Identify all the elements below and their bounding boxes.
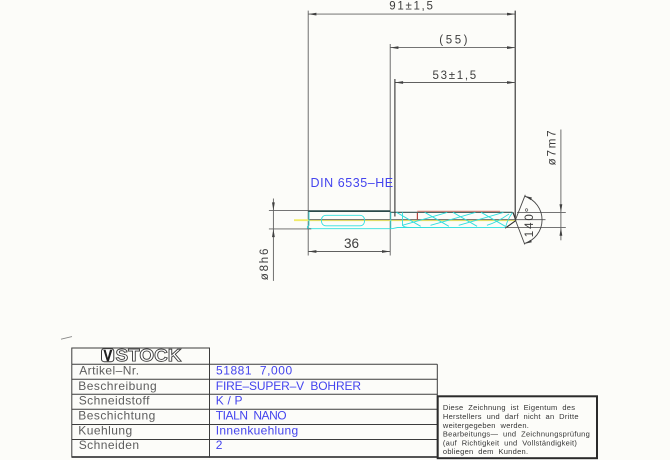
- svg-text:ø7m7: ø7m7: [547, 129, 559, 166]
- svg-text:(55): (55): [439, 34, 470, 46]
- svg-text:Schneiden: Schneiden: [79, 438, 140, 452]
- svg-text:FIRE–SUPER–V BOHRER: FIRE–SUPER–V BOHRER: [216, 379, 362, 393]
- svg-text:Diese Zeichnung ist Eigentum d: Diese Zeichnung ist Eigentum des: [443, 403, 575, 412]
- svg-text:Beschichtung: Beschichtung: [78, 409, 155, 423]
- svg-text:weitergegeben werden.: weitergegeben werden.: [442, 421, 529, 430]
- svg-text:91±1,5: 91±1,5: [389, 1, 434, 13]
- svg-text:Innenkuehlung: Innenkuehlung: [216, 423, 299, 437]
- svg-text:Artikel–Nr.: Artikel–Nr.: [79, 364, 139, 378]
- svg-text:DIN 6535–HE: DIN 6535–HE: [311, 176, 394, 190]
- svg-text:STOCK: STOCK: [115, 345, 181, 365]
- svg-text:53±1,5: 53±1,5: [433, 70, 478, 82]
- svg-text:K/P: K/P: [216, 394, 246, 408]
- svg-text:TIALN NANO: TIALN NANO: [216, 409, 287, 423]
- svg-text:Herstellers und darf nicht an: Herstellers und darf nicht an Dritte: [443, 412, 579, 421]
- svg-text:Beschreibung: Beschreibung: [78, 379, 157, 393]
- svg-text:Kuehlung: Kuehlung: [78, 423, 132, 437]
- svg-text:51881 7,000: 51881 7,000: [216, 364, 293, 378]
- svg-text:obliegen dem Kunden.: obliegen dem Kunden.: [443, 447, 528, 456]
- svg-text:Schneidstoff: Schneidstoff: [79, 394, 150, 408]
- svg-text:Bearbeitungs— und Zeichnungspr: Bearbeitungs— und Zeichnungsprüfung: [443, 430, 590, 439]
- svg-text:140°: 140°: [524, 206, 536, 237]
- svg-text:(auf Richtigkeit und Vollständ: (auf Richtigkeit und Vollständigkeit): [443, 438, 578, 447]
- svg-text:36: 36: [344, 236, 359, 251]
- svg-text:2: 2: [216, 438, 223, 452]
- svg-text:ø8h6: ø8h6: [259, 247, 271, 280]
